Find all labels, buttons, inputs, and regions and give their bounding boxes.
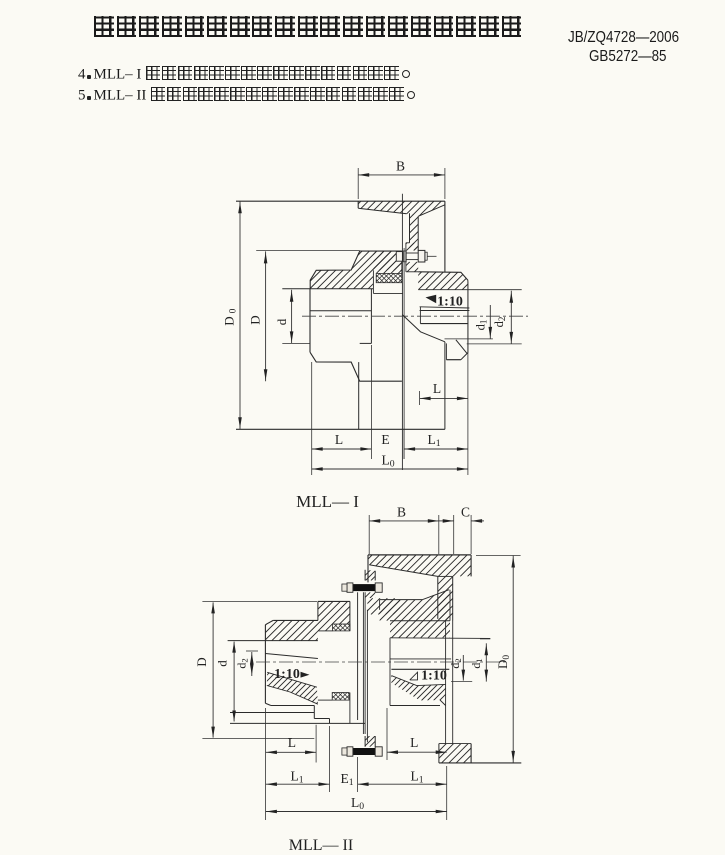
svg-text:d: d (274, 318, 289, 325)
svg-text:d2: d2 (448, 658, 463, 668)
svg-text:D0: D0 (495, 655, 512, 669)
svg-text:1:10: 1:10 (274, 667, 300, 682)
svg-text:d: d (215, 660, 230, 667)
svg-text:d1: d1 (469, 658, 484, 668)
svg-text:L: L (335, 432, 343, 447)
svg-text:D: D (248, 315, 263, 324)
svg-text:L1: L1 (290, 769, 303, 786)
svg-text:d2: d2 (492, 317, 507, 328)
svg-text:d2: d2 (235, 658, 250, 668)
svg-text:0: 0 (229, 308, 239, 313)
svg-text:L0: L0 (351, 795, 364, 812)
svg-text:L: L (410, 735, 418, 750)
svg-text:E: E (381, 432, 389, 447)
svg-text:D: D (194, 657, 209, 666)
svg-text:C: C (461, 505, 470, 520)
svg-text:1:10: 1:10 (421, 669, 447, 684)
svg-text:B: B (396, 159, 405, 174)
svg-text:MLL— II: MLL— II (289, 837, 353, 854)
svg-text:1:10: 1:10 (437, 295, 463, 310)
svg-text:d1: d1 (473, 320, 488, 331)
svg-text:B: B (397, 505, 406, 520)
svg-text:L1: L1 (427, 432, 440, 449)
svg-text:L1: L1 (410, 769, 423, 786)
svg-text:E1: E1 (340, 771, 353, 788)
svg-text:L: L (433, 381, 441, 396)
svg-text:L0: L0 (381, 453, 394, 470)
svg-text:L: L (288, 735, 296, 750)
svg-text:D: D (222, 316, 237, 325)
svg-text:MLL— I: MLL— I (296, 492, 359, 511)
